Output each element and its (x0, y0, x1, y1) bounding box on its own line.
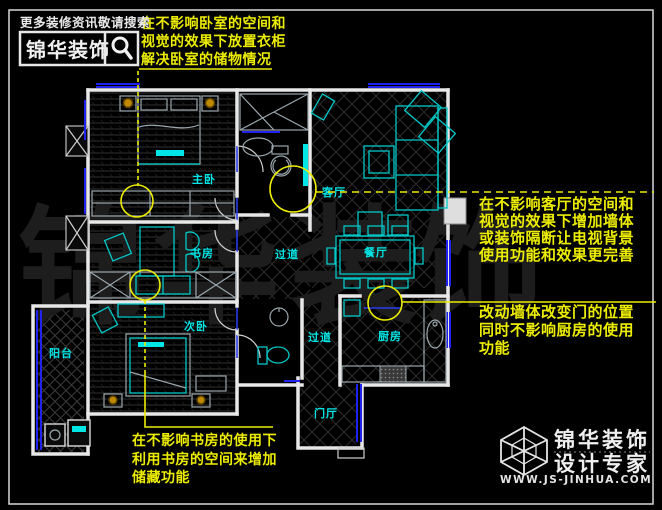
annotation-line: 在不影响客厅的空间和 (479, 195, 634, 213)
footer-subtitle: 设计专家 (554, 451, 650, 476)
bathroom-top-fixtures (240, 94, 308, 176)
annotation-line: 在不影响书房的使用下 (132, 432, 277, 449)
toilet (267, 347, 289, 363)
annotation-line: 视觉的效果下增加墙体 (479, 212, 635, 230)
brand-name: 锦华装饰 (26, 38, 110, 62)
annotation-line: 或装饰隔断让电视背景 (479, 229, 634, 247)
annotation-line: 改动墙体改变门的位置 (479, 303, 634, 321)
lamp-icon (206, 99, 215, 108)
lamp-icon (197, 396, 205, 404)
header: 更多装修资讯敬请搜索 锦华装饰 (20, 15, 150, 65)
annotation-line: 储藏功能 (131, 469, 190, 486)
annotation-line: 同时不影响厨房的使用 (479, 321, 634, 339)
tv (303, 144, 308, 186)
annotation-line: 利用书房的空间来增加 (132, 451, 277, 468)
label-study: 书房 (190, 246, 214, 260)
annotation-line: 视觉的效果下放置衣柜 (141, 33, 286, 50)
balcony-fixtures (45, 420, 90, 446)
label-foyer: 门厅 (314, 406, 338, 420)
annotation-line: 在不影响卧室的空间和 (141, 15, 286, 32)
footer-website: WWW.JS-JINHUA.COM (500, 474, 652, 486)
annotation-line: 使用功能和效果更完善 (478, 246, 634, 264)
label-dining: 餐厅 (363, 245, 388, 259)
footer-logo: 锦华装饰 设计专家 WWW.JS-JINHUA.COM (500, 427, 652, 486)
label-balcony: 阳台 (49, 346, 73, 360)
search-icon (113, 38, 131, 58)
annotation-kitchen: 改动墙体改变门的位置 同时不影响厨房的使用 功能 (479, 303, 634, 357)
label-second: 次卧 (184, 319, 208, 333)
annotation-study: 在不影响书房的使用下 利用书房的空间来增加 储藏功能 (131, 432, 277, 486)
label-corridor-1: 过道 (275, 247, 299, 261)
washer (45, 424, 65, 446)
annotation-bedroom: 在不影响卧室的空间和 视觉的效果下放置衣柜 解决卧室的储物情况 (141, 15, 286, 68)
lamp-icon (124, 99, 133, 108)
floorplan-poster: 锦 华 装 饰 (0, 0, 662, 510)
lamp-icon (109, 396, 117, 404)
stove (380, 366, 406, 382)
annotation-line: 功能 (479, 339, 510, 357)
footer-brand-name: 锦华装饰 (554, 427, 650, 452)
search-tagline: 更多装修资讯敬请搜索 (20, 15, 150, 30)
label-master: 主卧 (192, 172, 216, 186)
plan-canvas: 锦 华 装 饰 (0, 0, 662, 510)
label-kitchen: 厨房 (378, 329, 402, 343)
sink (243, 138, 273, 156)
label-corridor-2: 过道 (308, 330, 332, 344)
annotation-line: 解决卧室的储物情况 (141, 51, 272, 68)
bed-runner (156, 150, 184, 156)
annotation-living: 在不影响客厅的空间和 视觉的效果下增加墙体 或装饰隔断让电视背景 使用功能和效果… (478, 195, 635, 264)
cube-logo-icon (501, 427, 547, 475)
